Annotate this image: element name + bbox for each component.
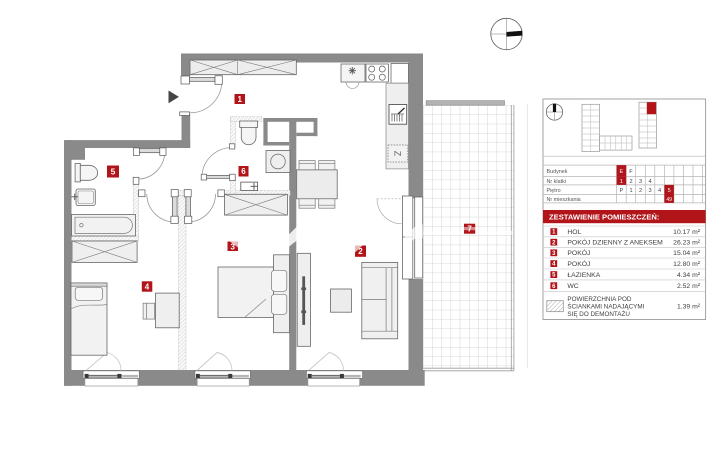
svg-text:2: 2	[629, 179, 632, 185]
svg-text:Budynek: Budynek	[547, 169, 568, 175]
svg-text:2: 2	[639, 188, 642, 194]
svg-text:1: 1	[620, 179, 623, 185]
svg-text:12.80 m²: 12.80 m²	[673, 261, 701, 268]
svg-text:Piętro: Piętro	[547, 188, 561, 194]
svg-text:1: 1	[237, 95, 242, 104]
svg-text:POWIERZCHNIA POD: POWIERZCHNIA POD	[567, 296, 631, 303]
svg-text:Nr mieszkania: Nr mieszkania	[547, 197, 581, 203]
svg-text:HOL: HOL	[567, 229, 581, 236]
svg-text:WC: WC	[567, 283, 578, 290]
svg-text:15.04 m²: 15.04 m²	[673, 250, 701, 257]
svg-text:1: 1	[629, 188, 632, 194]
svg-text:2.52 m²: 2.52 m²	[677, 283, 701, 290]
svg-text:ŚCIANKAMI NADAJĄCYMI: ŚCIANKAMI NADAJĄCYMI	[567, 302, 644, 311]
svg-text:F: F	[629, 169, 633, 175]
svg-text:P: P	[620, 188, 624, 194]
svg-text:POKÓJ: POKÓJ	[567, 259, 590, 268]
svg-text:POKÓJ: POKÓJ	[567, 248, 590, 257]
svg-text:ŁAZIENKA: ŁAZIENKA	[567, 272, 600, 279]
svg-text:Z: Z	[393, 151, 403, 157]
svg-text:4.34 m²: 4.34 m²	[677, 272, 701, 279]
svg-text:4: 4	[658, 188, 661, 194]
svg-text:POKÓJ DZIENNY Z ANEKSEM: POKÓJ DZIENNY Z ANEKSEM	[567, 238, 663, 247]
svg-text:5: 5	[668, 188, 671, 194]
svg-text:4: 4	[145, 282, 150, 291]
svg-text:3: 3	[639, 179, 642, 185]
svg-text:4: 4	[649, 179, 652, 185]
svg-text:E: E	[620, 169, 624, 175]
svg-text:3: 3	[649, 188, 652, 194]
svg-text:5: 5	[111, 167, 116, 177]
svg-text:6: 6	[241, 167, 246, 176]
svg-text:10.17 m²: 10.17 m²	[673, 229, 701, 236]
svg-text:26.23 m²: 26.23 m²	[673, 240, 701, 247]
svg-text:ZESTAWIENIE POMIESZCZEŃ:: ZESTAWIENIE POMIESZCZEŃ:	[549, 213, 659, 222]
svg-text:Nr klatki: Nr klatki	[547, 179, 566, 185]
svg-text:49: 49	[666, 197, 672, 203]
svg-text:SIĘ DO DEMONTAŻU: SIĘ DO DEMONTAŻU	[567, 309, 630, 318]
svg-text:1.39 m²: 1.39 m²	[677, 304, 701, 311]
